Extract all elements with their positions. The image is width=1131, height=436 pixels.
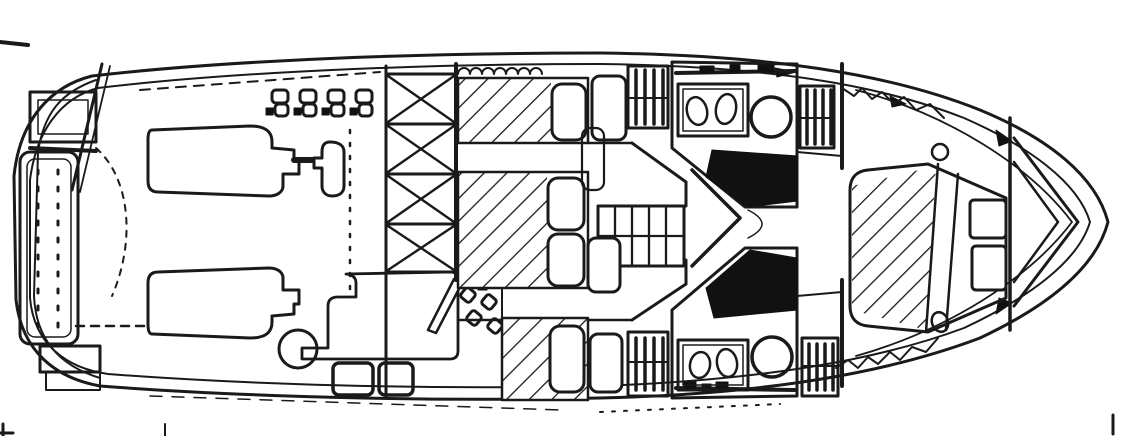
locker-seat bbox=[590, 334, 622, 392]
sink-basin bbox=[715, 347, 740, 378]
cleat-icon bbox=[303, 104, 316, 116]
vanity-inner bbox=[683, 89, 743, 131]
corridor-wall-angled bbox=[632, 143, 686, 182]
cleat-icon bbox=[359, 104, 372, 116]
cleat-icon bbox=[300, 90, 316, 103]
bow-chevron-inner bbox=[1014, 162, 1058, 282]
salon-berth-aft-hatch bbox=[459, 79, 551, 142]
cleat-icon bbox=[356, 90, 372, 103]
head-starboard bbox=[628, 248, 842, 398]
burner-icon bbox=[481, 294, 498, 311]
locker-shelf-line bbox=[797, 152, 842, 156]
v-berth-hatch bbox=[852, 166, 936, 330]
salon-berth-mid-hatch bbox=[459, 173, 547, 287]
crosshatch-ladder bbox=[386, 74, 456, 272]
cockpit-steps bbox=[333, 363, 373, 395]
berth-pillow bbox=[552, 84, 586, 140]
shower-stall-black bbox=[706, 250, 797, 318]
berth-filler-gap bbox=[946, 174, 958, 330]
toilet bbox=[752, 337, 792, 377]
berth-pillow bbox=[550, 326, 584, 392]
cleat-base bbox=[294, 108, 301, 115]
door-swing-arc bbox=[748, 210, 762, 238]
sink-basin bbox=[684, 95, 710, 127]
boat-floorplan-drawing bbox=[0, 0, 1131, 436]
cleat-base bbox=[322, 108, 329, 115]
counter-fitting bbox=[758, 65, 774, 72]
salon bbox=[386, 64, 762, 400]
cleat-icon bbox=[275, 104, 288, 116]
locker-shelf-line bbox=[797, 292, 842, 296]
vanity-sink-unit bbox=[678, 84, 748, 136]
bow-locker bbox=[972, 246, 1006, 290]
bow-locker bbox=[970, 200, 1006, 238]
stove-burners bbox=[460, 282, 504, 334]
boat-floorplan-page bbox=[0, 0, 1131, 436]
cleat-base bbox=[350, 108, 357, 115]
deck-dotted-line-bottom bbox=[600, 404, 780, 412]
cleat-icon bbox=[272, 90, 288, 103]
cockpit-fittings bbox=[266, 90, 372, 116]
berth-pillow bbox=[548, 178, 584, 230]
starboard-engine bbox=[148, 268, 299, 338]
counter-fitting bbox=[700, 66, 714, 73]
curtain-scallop-trim bbox=[458, 68, 542, 74]
head-port bbox=[628, 62, 842, 207]
port-engine bbox=[148, 126, 299, 196]
sink-basin bbox=[688, 350, 712, 379]
transom-inner-line bbox=[34, 80, 100, 378]
engine-control bbox=[314, 142, 344, 196]
toilet bbox=[751, 97, 791, 137]
tick-top-left bbox=[0, 42, 28, 45]
corridor-wall-angled bbox=[632, 284, 686, 320]
locker-seat bbox=[592, 76, 626, 140]
berth-pillow bbox=[548, 234, 584, 286]
cockpit-steps bbox=[379, 363, 413, 395]
cleat-icon bbox=[331, 104, 344, 116]
bow-cabin bbox=[836, 88, 1010, 368]
stern-step bbox=[40, 346, 100, 372]
locker-seat bbox=[588, 238, 620, 292]
counter-fitting bbox=[730, 65, 740, 72]
cleat-icon bbox=[328, 90, 344, 103]
transom-bench-cushion bbox=[27, 159, 71, 337]
door-swing-arc bbox=[96, 148, 127, 296]
deck-fitting-circle bbox=[932, 144, 948, 160]
sink-basin bbox=[714, 92, 739, 125]
transom-bench bbox=[20, 152, 78, 344]
burner-icon bbox=[466, 310, 483, 327]
cleat-base bbox=[266, 108, 273, 115]
